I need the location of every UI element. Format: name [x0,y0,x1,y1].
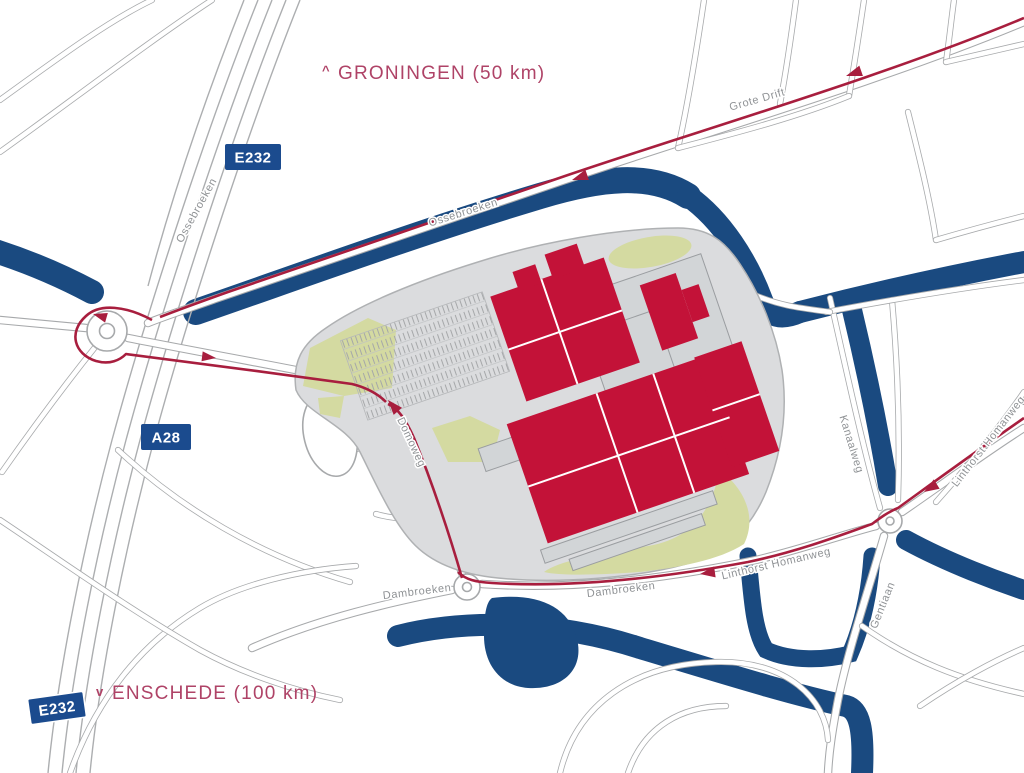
destination-north: ^ GRONINGEN (50 km) [322,63,545,84]
svg-text:A28: A28 [151,430,180,447]
down-chevron-icon: v [96,684,104,699]
up-chevron-icon: ^ [322,63,330,78]
destination-south-label: ENSCHEDE (100 km) [112,683,318,704]
site-access-map: Ossebroeken Ossebroeken Grote Drift Domo… [0,0,1024,773]
svg-text:E232: E232 [234,150,271,167]
destination-south: v ENSCHEDE (100 km) [96,683,318,704]
roundabout-main [87,311,127,351]
shield-e232-top: E232 [225,144,281,170]
map-canvas: Ossebroeken Ossebroeken Grote Drift Domo… [0,0,1024,773]
destination-north-label: GRONINGEN (50 km) [338,63,545,84]
shield-a28: A28 [141,424,191,450]
